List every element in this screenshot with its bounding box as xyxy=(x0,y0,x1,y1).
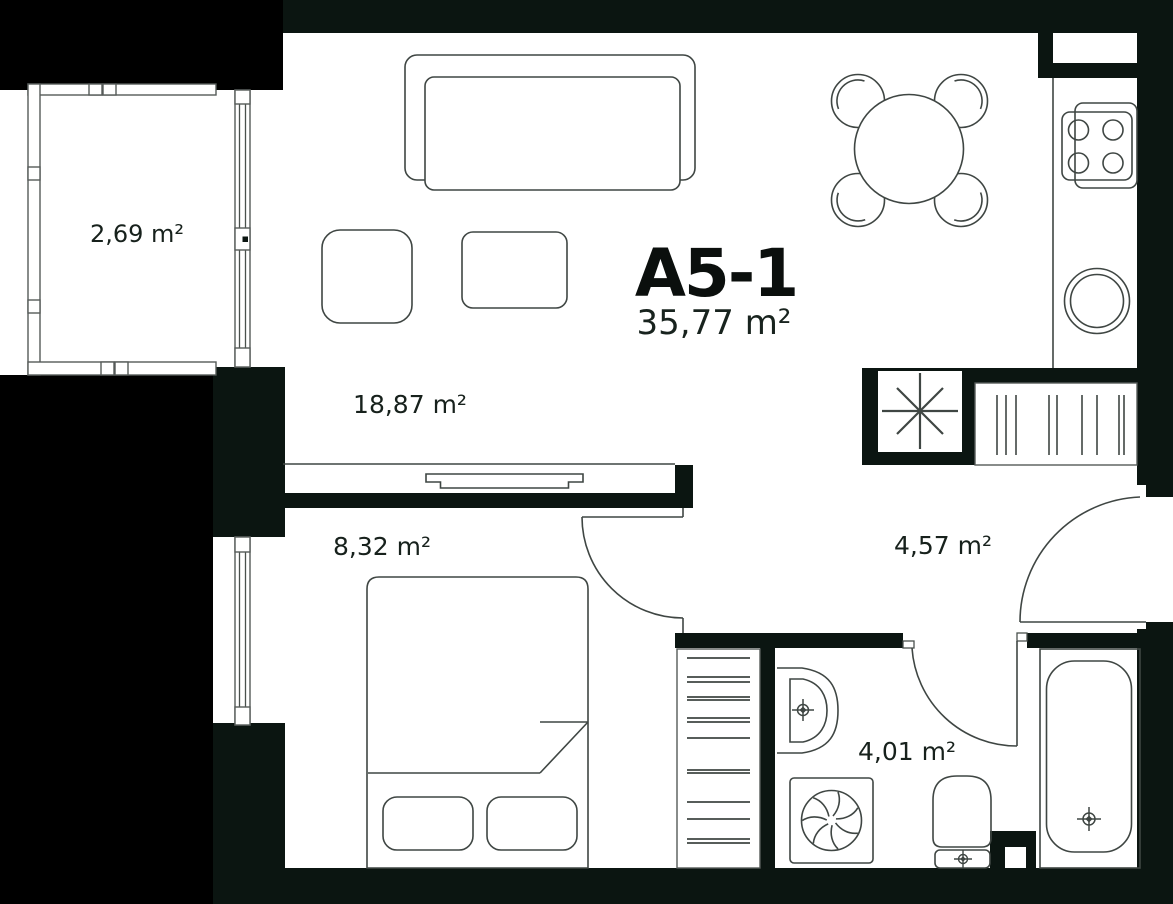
balcony-glazing-left xyxy=(28,84,40,375)
wall-right-upper xyxy=(1137,0,1173,497)
bedroom-window-sill xyxy=(235,537,250,552)
entrance-door-swing-arc xyxy=(1020,497,1140,622)
bathroom-area-label: 4,01 m² xyxy=(858,737,956,766)
balcony-area-label: 2,69 m² xyxy=(90,220,184,248)
pouf-icon xyxy=(322,230,412,323)
cistern-valve-icon xyxy=(954,850,972,868)
hallway-area-label: 4,57 m² xyxy=(894,531,992,560)
bathroom-door-swing-arc xyxy=(912,648,1017,746)
kitchen-niche xyxy=(1053,33,1135,63)
stove-back-panel-icon xyxy=(1075,103,1137,188)
entry-jamb-bottom-notch xyxy=(1137,622,1146,629)
entry-jamb-top-notch xyxy=(1137,485,1146,497)
bedroom-window xyxy=(235,537,250,725)
bedroom-window-sill xyxy=(235,707,250,725)
balcony-glazing-bottom-mullion xyxy=(115,362,128,375)
wall-over-wardrobe xyxy=(962,368,1140,383)
bedroom xyxy=(367,577,760,868)
balcony-window-sill xyxy=(235,348,250,367)
balcony-door-handle xyxy=(243,237,249,243)
burner-icon xyxy=(1103,153,1123,173)
shaft-and-wardrobe xyxy=(862,368,1137,465)
wall-left-mid-block xyxy=(213,367,285,537)
sofa-seat-icon xyxy=(425,77,680,190)
bathtub-drain-icon xyxy=(1077,807,1101,831)
burner-icon xyxy=(1069,153,1089,173)
balcony-glazing-left-mullion xyxy=(28,167,40,180)
burner-icon xyxy=(1103,120,1123,140)
faucet-icon xyxy=(792,699,814,721)
living-room xyxy=(283,55,695,488)
wall-top xyxy=(283,0,1173,33)
wall-top-left-block xyxy=(0,0,283,90)
wall-left-low-block xyxy=(213,723,285,868)
dining-area xyxy=(832,75,988,227)
wall-bathroom-north-left xyxy=(675,633,903,648)
pillow-icon xyxy=(487,797,577,850)
toilet-icon xyxy=(933,776,991,847)
wall-kitchen-niche-bottom xyxy=(1053,63,1137,78)
wall-bathroom-north-right xyxy=(1027,633,1140,648)
balcony-glazing-top-mullion xyxy=(103,84,116,95)
kitchen xyxy=(1053,78,1137,368)
wall-right-lower xyxy=(1137,622,1173,904)
bedroom-area-label: 8,32 m² xyxy=(333,532,431,561)
wall-bottom xyxy=(213,868,1173,904)
burner-icon xyxy=(1069,120,1089,140)
bathroom-door-jamb xyxy=(1017,633,1027,641)
unit-total-area: 35,77 m² xyxy=(637,303,792,343)
living-area-label: 18,87 m² xyxy=(353,390,467,419)
floor-plan: 2,69 m² 18,87 m² 8,32 m² 4,57 m² 4,01 m²… xyxy=(0,0,1173,904)
balcony-glazing-top xyxy=(28,84,216,95)
bathtub-icon xyxy=(1040,649,1140,868)
wall-bedroom-north xyxy=(222,493,693,508)
wall-stub-living-hall xyxy=(675,465,693,508)
balcony-glazing-bottom-mullion xyxy=(101,362,114,375)
wall-kitchen-niche-left xyxy=(1038,33,1053,78)
washing-machine-drum-icon xyxy=(802,791,862,851)
bedroom-door-swing-arc xyxy=(582,517,683,618)
tv-console-icon xyxy=(426,474,583,488)
doors xyxy=(582,497,1146,746)
kitchen-sink-inner-icon xyxy=(1071,275,1124,328)
balcony-window-sill xyxy=(235,90,250,104)
floor-plan-canvas: 2,69 m² 18,87 m² 8,32 m² 4,57 m² 4,01 m²… xyxy=(0,0,1173,904)
wall-toilet-tub-notch xyxy=(1005,847,1026,868)
coffee-table-icon xyxy=(462,232,567,308)
wardrobe-icon xyxy=(975,383,1137,465)
wall-closet-bathroom xyxy=(760,648,775,868)
bathroom xyxy=(777,649,1140,868)
pillow-icon xyxy=(383,797,473,850)
dining-table-icon xyxy=(855,95,964,204)
unit-id-title: A5-1 xyxy=(635,235,797,312)
bedroom-window-frame xyxy=(235,537,250,725)
kitchen-sink-icon xyxy=(1065,269,1130,334)
balcony-glazing-left-mullion xyxy=(28,300,40,313)
bathroom-door-jamb xyxy=(903,641,914,648)
outside-mass-bottom-left xyxy=(0,375,213,904)
balcony-glazing-top-mullion xyxy=(89,84,102,95)
